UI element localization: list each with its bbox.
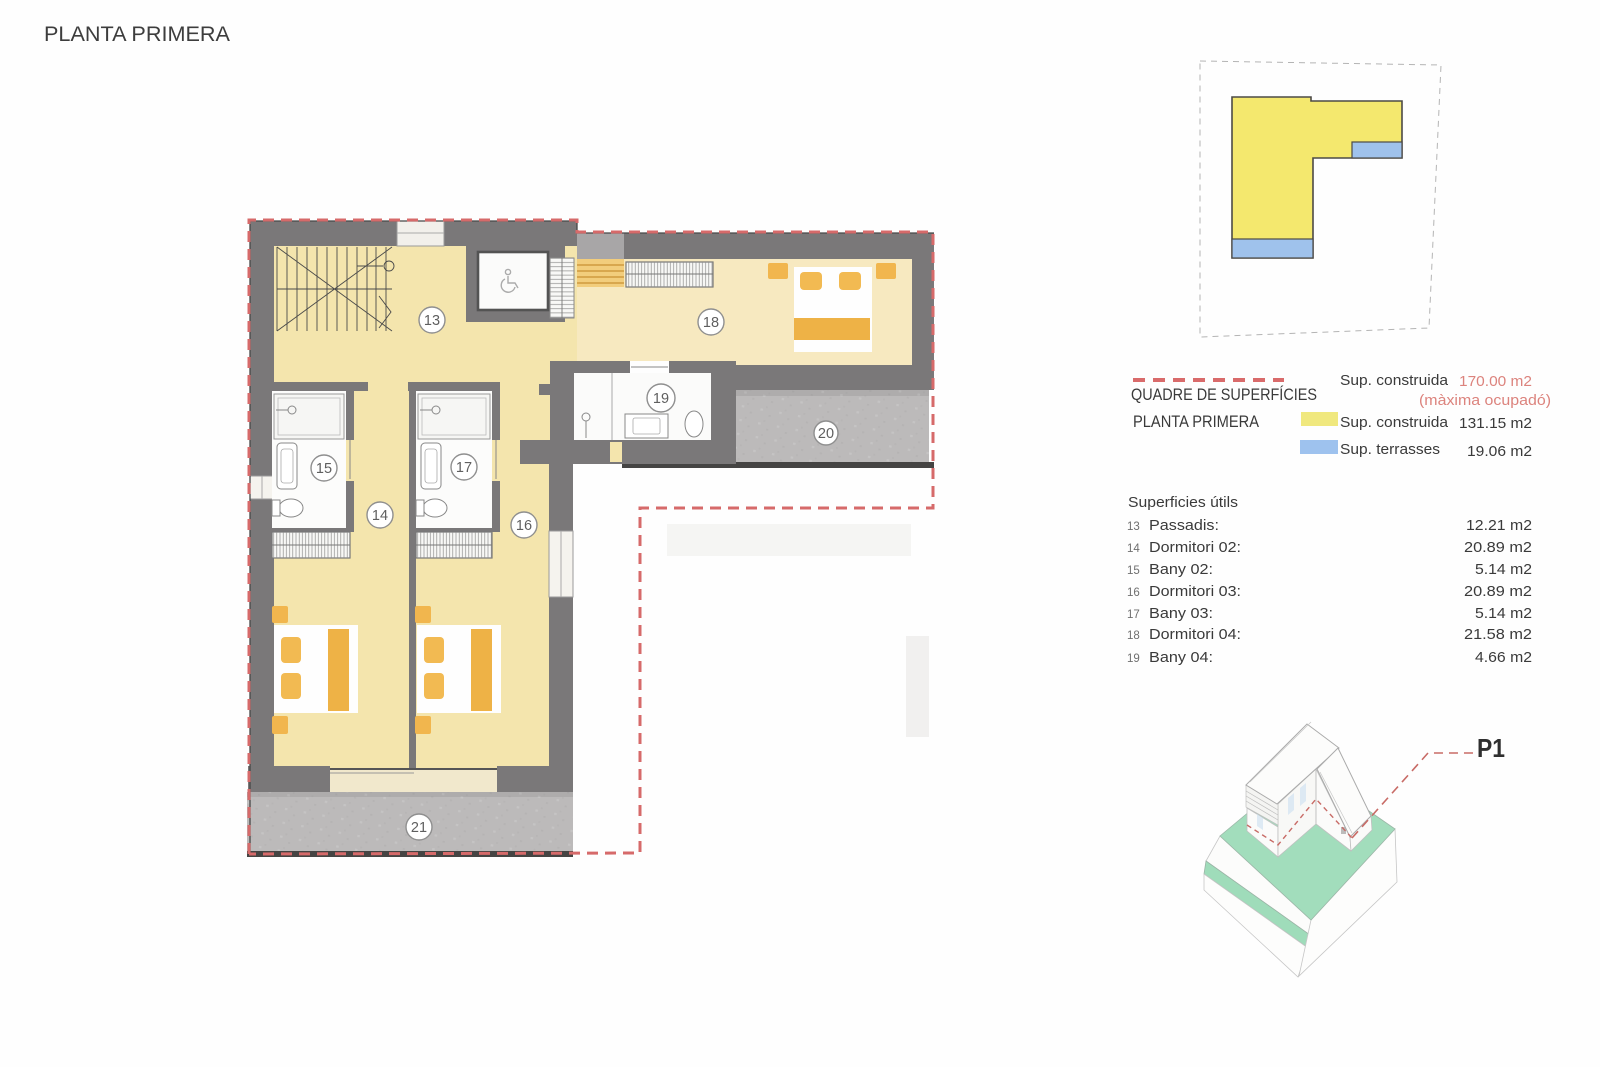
svg-text:16: 16 <box>1127 587 1140 599</box>
svg-text:16: 16 <box>516 518 532 534</box>
svg-text:170.00 m2: 170.00 m2 <box>1459 373 1532 390</box>
svg-text:20: 20 <box>818 426 834 442</box>
svg-text:12.21 m2: 12.21 m2 <box>1466 517 1532 534</box>
svg-text:PLANTA PRIMERA: PLANTA PRIMERA <box>1133 412 1260 431</box>
svg-text:15: 15 <box>1127 565 1140 577</box>
svg-text:18: 18 <box>1127 630 1140 642</box>
svg-text:19: 19 <box>653 391 669 407</box>
svg-text:5.14 m2: 5.14 m2 <box>1475 605 1532 622</box>
svg-text:5.14 m2: 5.14 m2 <box>1475 561 1532 578</box>
svg-text:Bany 02:: Bany 02: <box>1149 561 1213 578</box>
svg-text:14: 14 <box>372 508 388 524</box>
svg-text:13: 13 <box>424 313 440 329</box>
svg-text:19: 19 <box>1127 653 1140 665</box>
svg-text:17: 17 <box>456 460 472 476</box>
svg-text:Dormitori 02:: Dormitori 02: <box>1149 539 1241 556</box>
svg-text:20.89 m2: 20.89 m2 <box>1464 583 1532 600</box>
svg-text:131.15 m2: 131.15 m2 <box>1459 415 1532 432</box>
svg-text:PLANTA PRIMERA: PLANTA PRIMERA <box>44 23 230 46</box>
svg-text:14: 14 <box>1127 543 1140 555</box>
svg-text:Bany 04:: Bany 04: <box>1149 649 1213 666</box>
svg-text:(màxima ocupadó): (màxima ocupadó) <box>1419 392 1551 409</box>
svg-text:15: 15 <box>316 461 332 477</box>
svg-text:Superficies útils: Superficies útils <box>1128 494 1238 511</box>
svg-text:21: 21 <box>411 820 427 836</box>
svg-text:18: 18 <box>703 315 719 331</box>
svg-text:Bany 03:: Bany 03: <box>1149 605 1213 622</box>
svg-text:4.66 m2: 4.66 m2 <box>1475 649 1532 666</box>
svg-text:21.58 m2: 21.58 m2 <box>1464 626 1532 643</box>
svg-text:Sup. construida: Sup. construida <box>1340 372 1449 389</box>
svg-text:QUADRE DE SUPERFÍCIES: QUADRE DE SUPERFÍCIES <box>1131 385 1317 404</box>
svg-text:19.06 m2: 19.06 m2 <box>1467 443 1532 460</box>
svg-text:Sup. construida: Sup. construida <box>1340 414 1449 431</box>
svg-text:Dormitori 04:: Dormitori 04: <box>1149 626 1241 643</box>
svg-text:Sup. terrasses: Sup. terrasses <box>1340 441 1440 458</box>
svg-text:P1: P1 <box>1477 733 1505 763</box>
svg-text:20.89 m2: 20.89 m2 <box>1464 539 1532 556</box>
svg-text:13: 13 <box>1127 521 1140 533</box>
svg-text:Dormitori 03:: Dormitori 03: <box>1149 583 1241 600</box>
svg-text:Passadis:: Passadis: <box>1149 517 1219 534</box>
svg-text:17: 17 <box>1127 609 1140 621</box>
